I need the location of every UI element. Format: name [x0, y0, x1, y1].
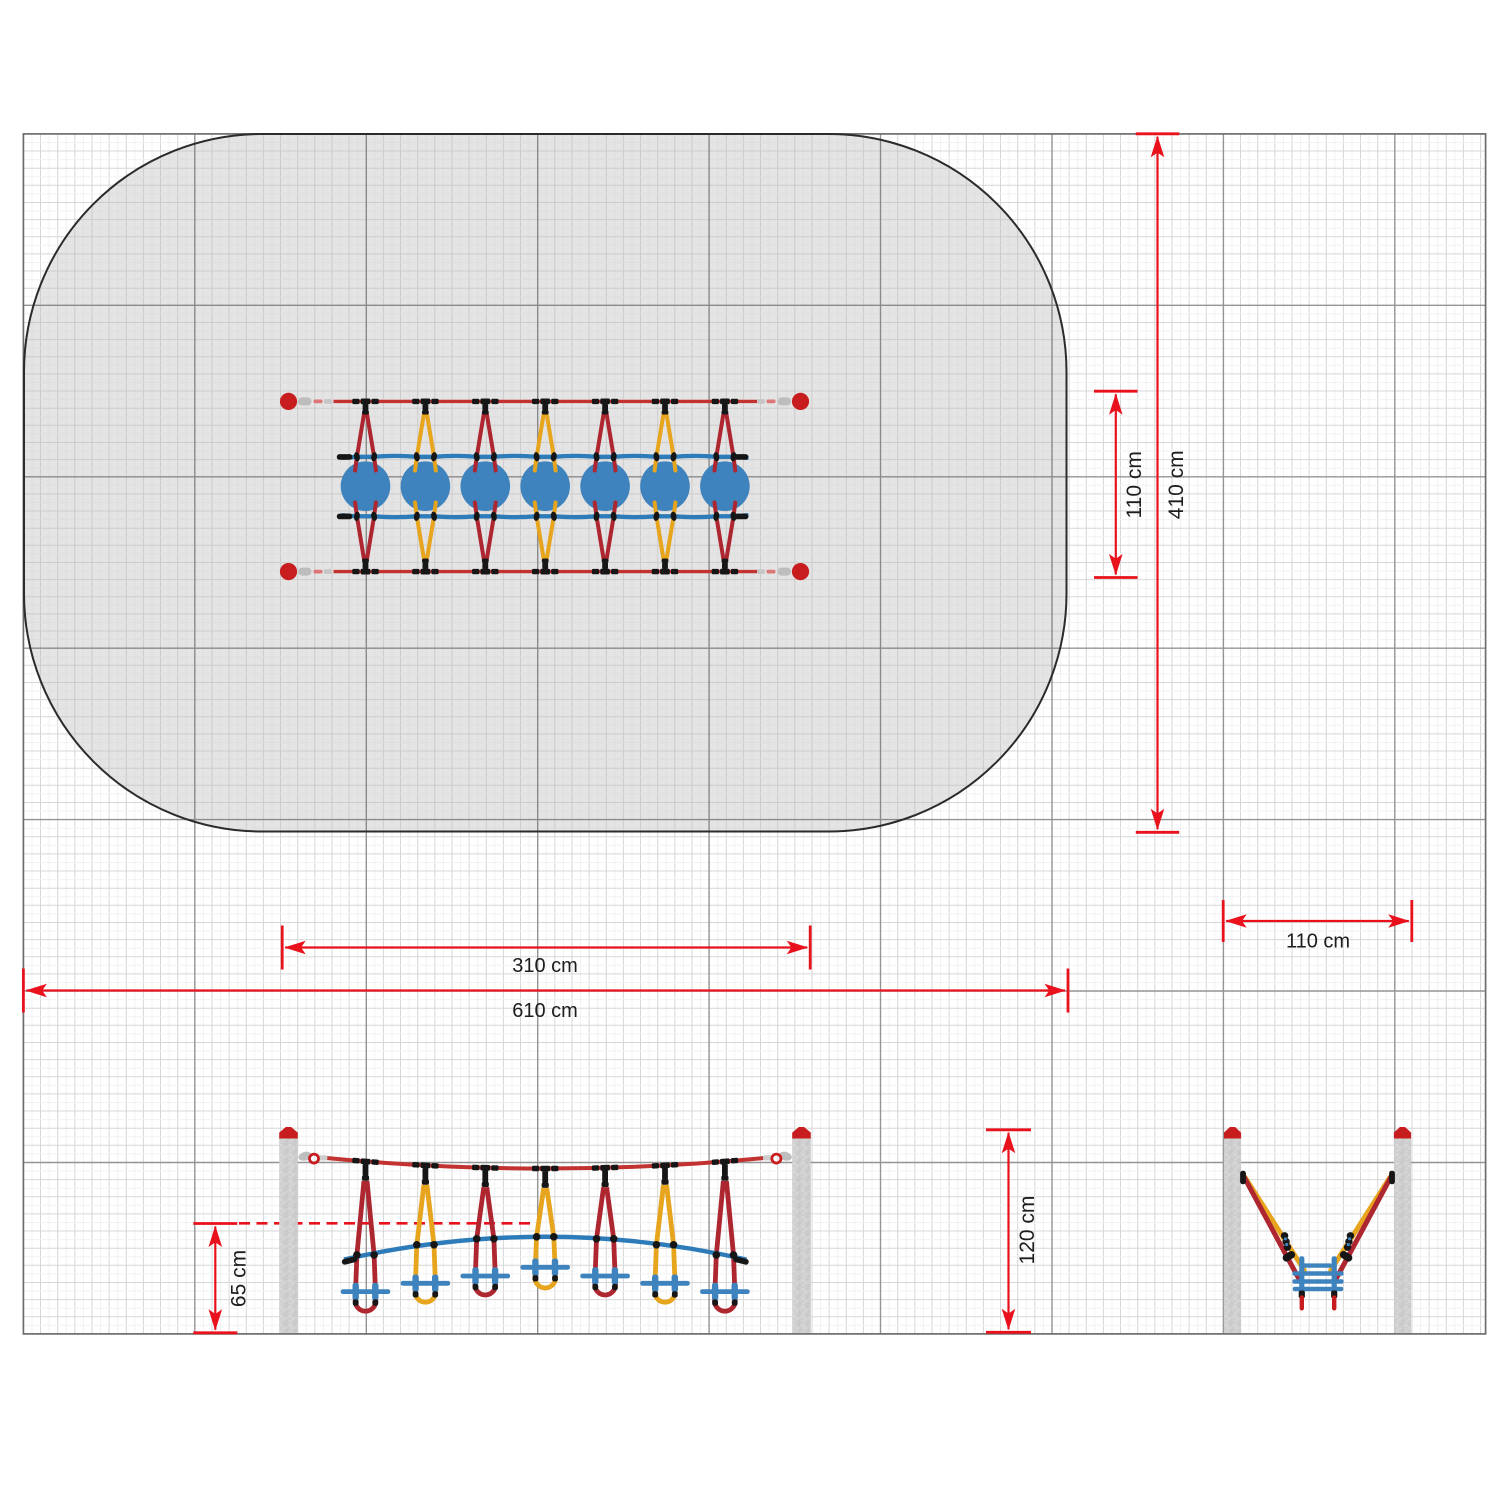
svg-text:310 cm: 310 cm: [512, 955, 578, 977]
svg-text:120 cm: 120 cm: [1016, 1196, 1039, 1265]
svg-text:110 cm: 110 cm: [1123, 451, 1146, 518]
svg-text:110 cm: 110 cm: [1286, 931, 1350, 953]
svg-text:610 cm: 610 cm: [512, 1000, 578, 1022]
svg-text:410 cm: 410 cm: [1165, 450, 1188, 519]
svg-text:65 cm: 65 cm: [228, 1250, 251, 1307]
